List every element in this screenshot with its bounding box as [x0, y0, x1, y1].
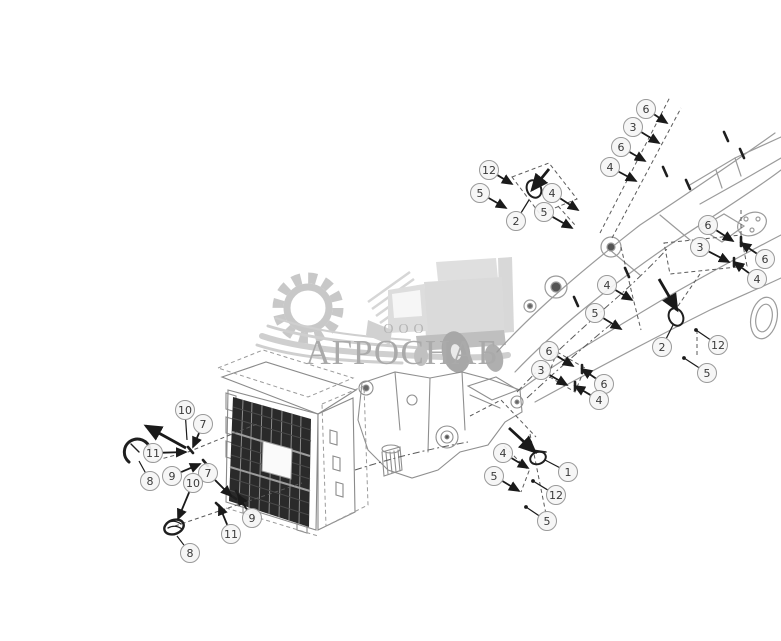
- frame-assembly: [358, 372, 523, 478]
- radiator-assembly: [218, 350, 368, 536]
- watermark-logo: ООО АГРОСНАБ: [257, 257, 514, 375]
- watermark-company-name: АГРОСНАБ: [305, 333, 498, 372]
- gear-icon: [278, 278, 338, 338]
- clamp-part-8a: [124, 439, 150, 462]
- parts-diagram-canvas: ООО АГРОСНАБ: [0, 0, 781, 641]
- parts-diagram-page: ООО АГРОСНАБ: [0, 0, 781, 641]
- hose-clamp-part-8b: [162, 517, 186, 537]
- boom-assembly: [497, 133, 781, 402]
- clamp-part-1: [528, 450, 547, 467]
